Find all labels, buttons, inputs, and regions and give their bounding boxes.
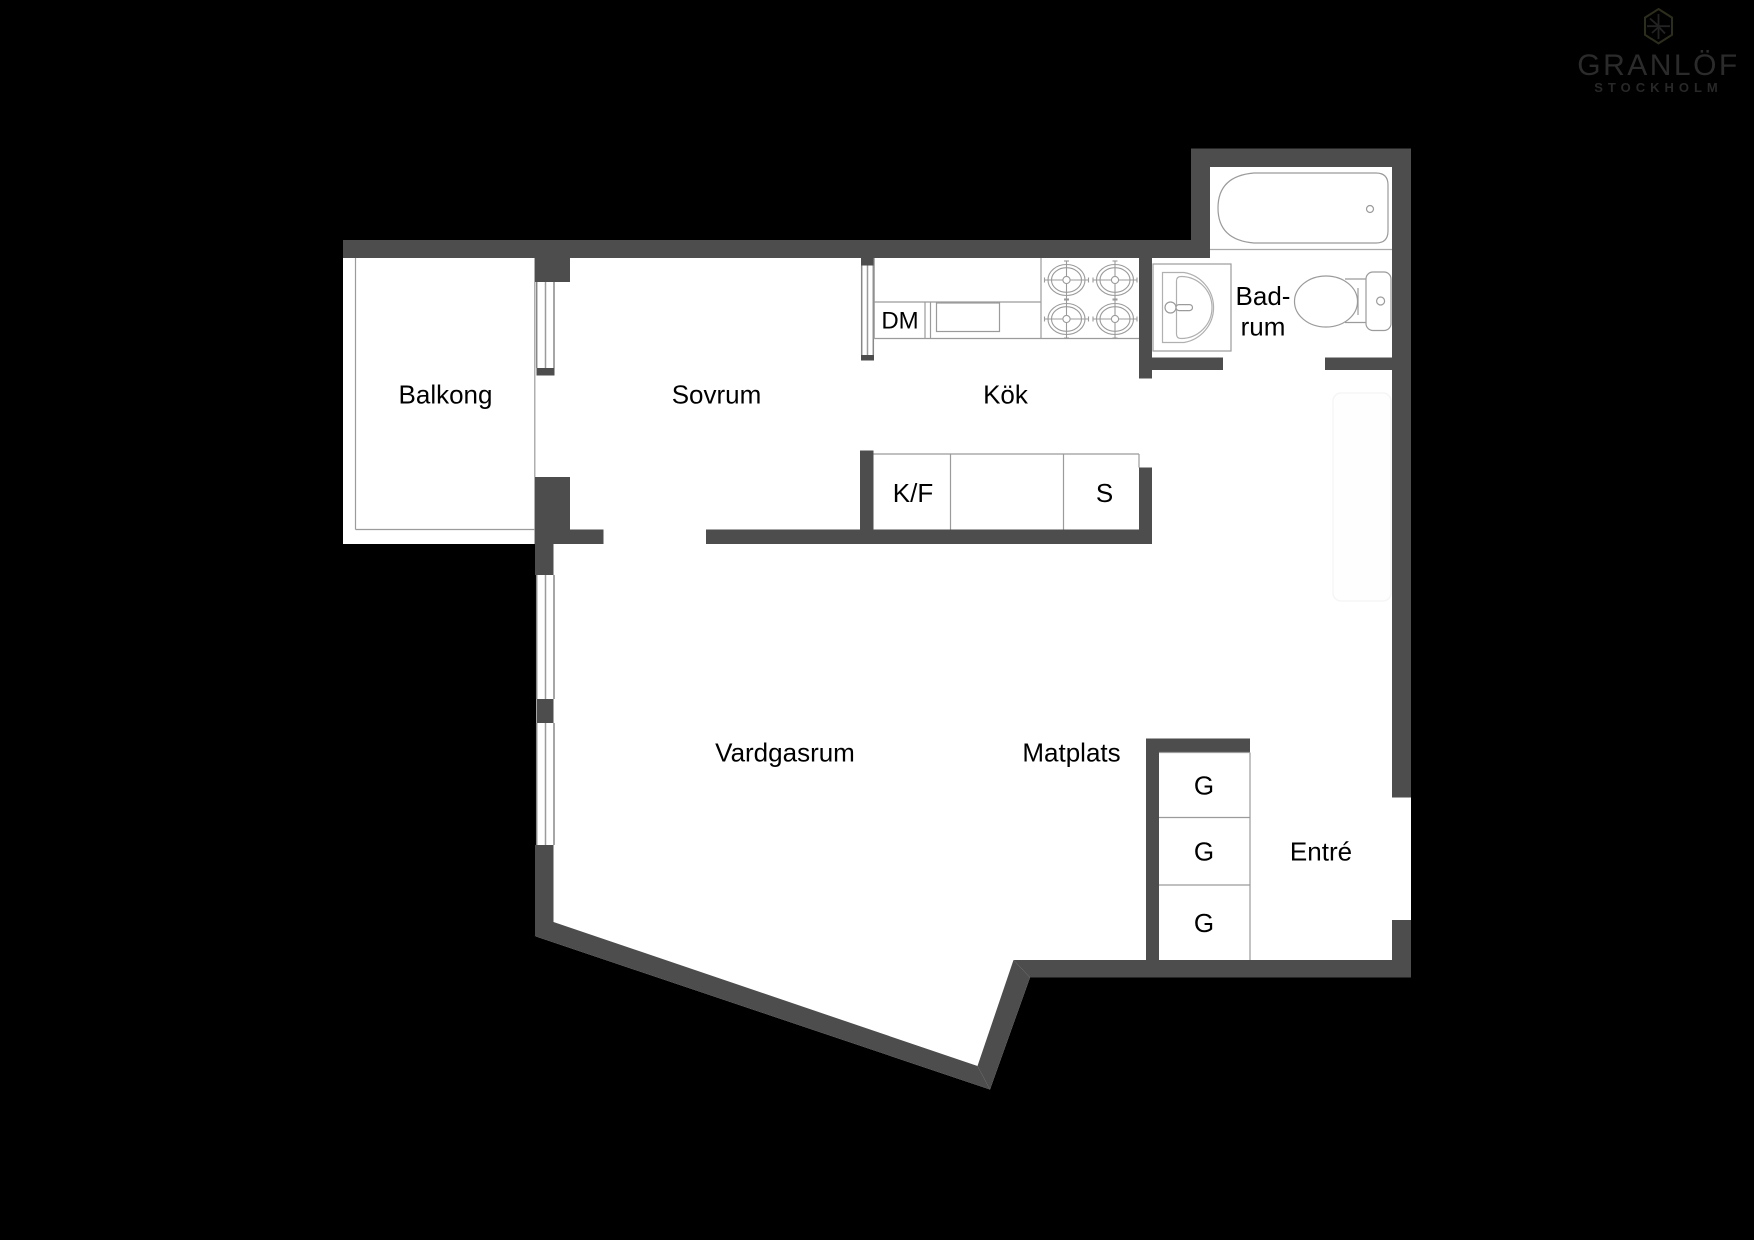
svg-text:K/F: K/F xyxy=(893,478,933,508)
svg-text:Sovrum: Sovrum xyxy=(672,380,762,410)
svg-text:STOCKHOLM: STOCKHOLM xyxy=(1594,80,1723,95)
svg-text:S: S xyxy=(1096,478,1113,508)
svg-text:DM: DM xyxy=(881,308,918,335)
svg-text:Matplats: Matplats xyxy=(1022,738,1120,768)
svg-text:G: G xyxy=(1194,771,1214,801)
svg-text:GRANLÖF: GRANLÖF xyxy=(1577,49,1740,82)
svg-text:G: G xyxy=(1194,837,1214,867)
svg-text:G: G xyxy=(1194,908,1214,938)
svg-text:Vardgasrum: Vardgasrum xyxy=(715,738,855,768)
svg-text:Balkong: Balkong xyxy=(399,380,493,410)
svg-text:Entré: Entré xyxy=(1290,837,1352,867)
svg-text:rum: rum xyxy=(1241,312,1286,342)
svg-text:Kök: Kök xyxy=(983,380,1029,410)
svg-text:Bad-: Bad- xyxy=(1236,281,1291,311)
